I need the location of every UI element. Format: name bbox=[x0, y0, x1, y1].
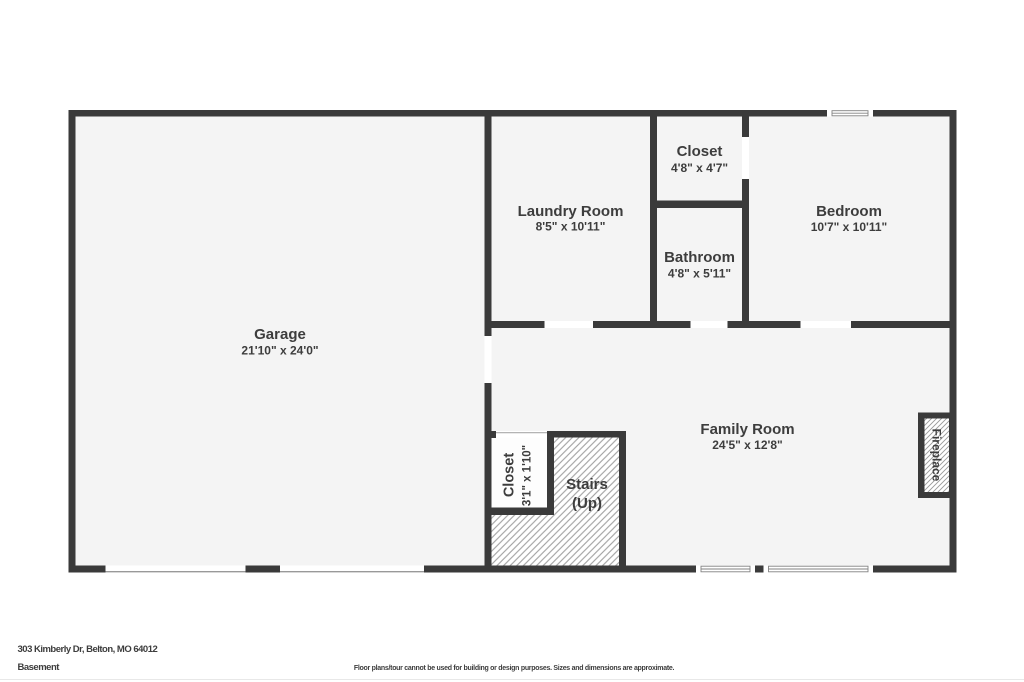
svg-text:Basement: Basement bbox=[18, 662, 61, 673]
svg-text:4'8" x 4'7": 4'8" x 4'7" bbox=[671, 161, 728, 175]
svg-text:Bedroom: Bedroom bbox=[816, 203, 882, 220]
svg-text:Stairs: Stairs bbox=[566, 476, 608, 493]
svg-text:Floor plans/tour cannot be use: Floor plans/tour cannot be used for buil… bbox=[354, 665, 675, 672]
svg-text:Bathroom: Bathroom bbox=[664, 249, 735, 266]
svg-text:Fireplace: Fireplace bbox=[930, 429, 944, 482]
svg-text:21'10" x 24'0": 21'10" x 24'0" bbox=[241, 344, 318, 358]
svg-text:303 Kimberly Dr, Belton, MO 64: 303 Kimberly Dr, Belton, MO 64012 bbox=[18, 644, 158, 655]
svg-text:24'5" x 12'8": 24'5" x 12'8" bbox=[712, 438, 782, 452]
svg-text:Family Room: Family Room bbox=[700, 421, 794, 438]
svg-text:Garage: Garage bbox=[254, 326, 306, 343]
svg-text:Closet: Closet bbox=[502, 453, 518, 497]
svg-text:10'7" x 10'11": 10'7" x 10'11" bbox=[811, 220, 887, 234]
svg-text:Closet: Closet bbox=[677, 143, 723, 160]
svg-text:4'8" x 5'11": 4'8" x 5'11" bbox=[668, 267, 731, 281]
svg-text:(Up): (Up) bbox=[572, 495, 602, 512]
svg-text:3'1" x 1'10": 3'1" x 1'10" bbox=[522, 445, 534, 506]
svg-text:8'5" x 10'11": 8'5" x 10'11" bbox=[536, 220, 606, 234]
svg-text:Laundry Room: Laundry Room bbox=[518, 203, 624, 220]
